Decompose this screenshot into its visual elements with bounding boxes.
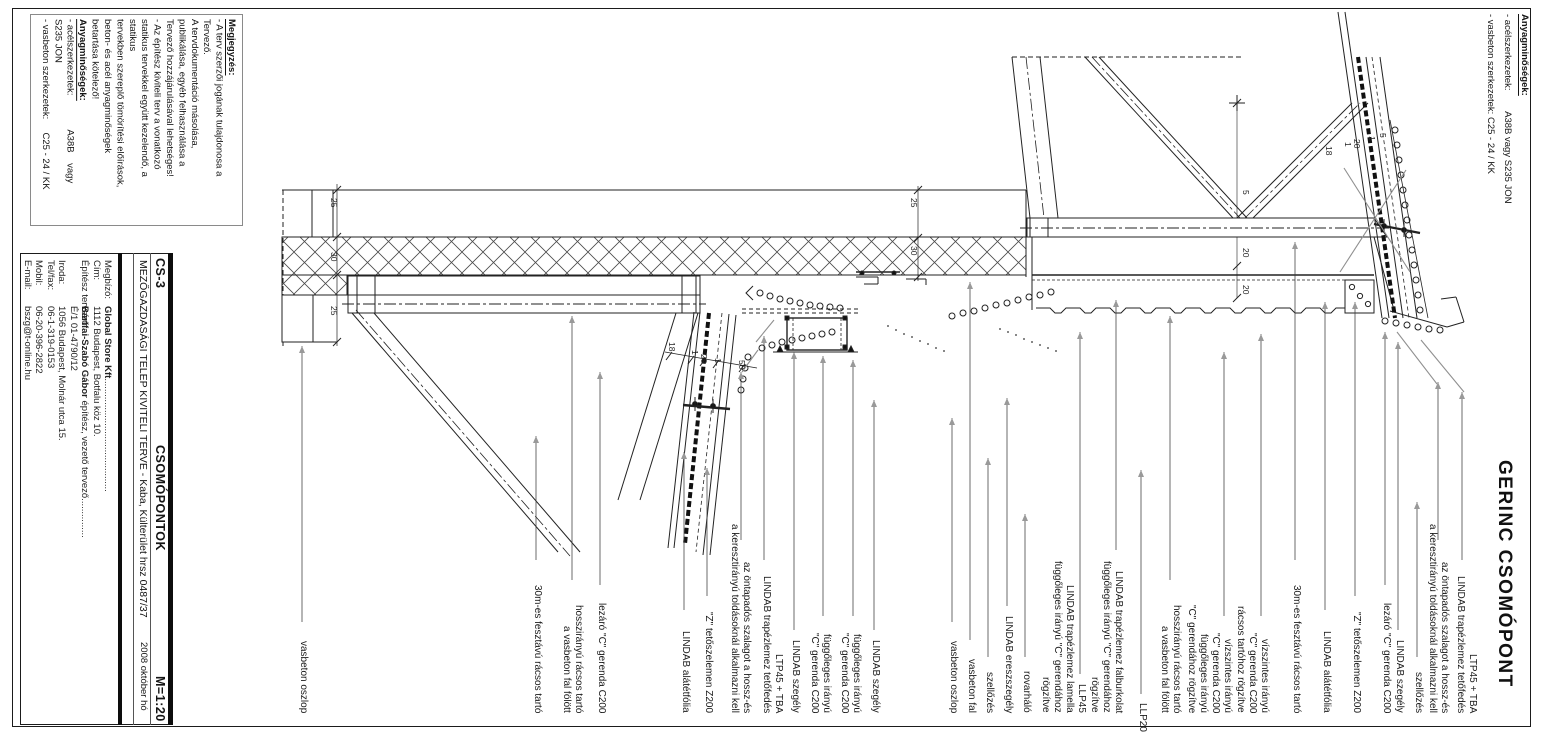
notes-line: beton- és acél anyagminőségek <box>101 19 113 221</box>
leader-arrow-icon <box>1459 392 1465 399</box>
drawing-label: "Z" tetőszelemen Z200 <box>702 612 714 713</box>
notes-line: - Az építész kiviteli terv a vonatkozó <box>150 19 162 221</box>
title-block-row-value-text: É/1 01-4790/12 <box>68 306 79 371</box>
leader-arrow-icon <box>738 372 744 379</box>
dimension-text: 20 <box>1241 248 1251 257</box>
drawing-label: az öntapadós szalagot a hossz-és a keres… <box>728 524 752 713</box>
dimension-text: 5 <box>1378 133 1388 138</box>
drawing-label: vízszintes irányú "C" gerenda C200 függő… <box>1185 605 1233 713</box>
drawing-label: függőleges irányú "C" gerenda C200 <box>808 633 832 713</box>
materials-note-title: Anyagminőségek: <box>1516 14 1533 204</box>
leader-arrow-icon <box>850 360 856 367</box>
notes-line: Tervező hozzájárulásával lehetséges! <box>163 19 175 221</box>
leader-arrow-icon <box>1077 332 1083 339</box>
title-block-row-value-text: ........................................… <box>102 378 113 492</box>
drawing-label: 30m-es fesztávú rácsos tartó <box>1290 585 1302 713</box>
notes-line: betartása kötelező! <box>88 19 100 221</box>
notes-line: statikus <box>125 19 137 221</box>
title-block-row-value-text: 1056 Budapest, Molnár utca 15. <box>56 306 67 441</box>
title-block-row-value-text: 1112 Budapest, Botfalu köz 10. <box>91 306 102 437</box>
issue-date: 2008 október hó <box>138 642 149 711</box>
leader-arrow-icon <box>299 346 305 353</box>
dimension-text: 50 <box>737 360 747 369</box>
notes-line: tervekben szereplő tömörítési előírások, <box>113 19 125 221</box>
title-block-row-value: Bártfai-Szabó Gábor építész, vezető terv… <box>79 306 90 538</box>
dimension-text: 1 <box>713 358 723 363</box>
title-block-row-value-text: bszg@t-online.hu <box>22 306 33 380</box>
title-block-row-label: E-mail: <box>22 260 33 290</box>
project-title: MEZŐGAZDASÁGI TELEP KIVITELI TERVE - Kab… <box>137 260 149 618</box>
materials-note-top-right: Anyagminőségek: - acélszerkezetek: A38B … <box>1482 14 1533 204</box>
drawing-label: 30m-es fesztávú rácsos tartó <box>531 585 543 713</box>
leader-arrow-icon <box>1292 242 1298 249</box>
dimension-text: 30 <box>329 252 339 261</box>
leader-arrow-icon <box>949 418 955 425</box>
leader-arrow-icon <box>1414 502 1420 509</box>
notes-line: Tervező. <box>200 19 212 221</box>
dimension-text: 20 <box>1352 139 1362 148</box>
notes-line: S235 JON <box>51 19 63 221</box>
leader-arrow-icon <box>1258 334 1264 341</box>
title-block-row-label: Cím: <box>91 260 102 280</box>
title-block-row-value-text: 06-20-396-2822 <box>33 306 44 374</box>
sheet-name: CSOMÓPONTOK <box>153 445 167 551</box>
drawing-label: az öntapadós szalagot a hossz-és a keres… <box>1426 524 1450 713</box>
leader-arrow-icon <box>761 336 767 343</box>
notes-line: publikálása, egyéb felhasználása a <box>175 19 187 221</box>
drawing-label: LINDAB ereszszegély <box>1002 616 1014 713</box>
drawing-label: LINDAB szegély <box>1393 640 1405 713</box>
leader-arrow-icon <box>1113 300 1119 307</box>
drawing-label: lezáró "C" gerenda C200 <box>1380 603 1392 714</box>
notes-block: Megjegyzés:- A terv szerzői jogának tula… <box>30 14 243 226</box>
title-block-row-value: 06-1-319-0153 <box>45 306 56 368</box>
drawing-label: függőleges irányú "C" gerenda C200 <box>838 633 862 713</box>
drawing-label: vízszintes irányú "C" gerenda C200 rácso… <box>1234 606 1270 713</box>
title-block-row-label: Megbízó: <box>102 260 113 299</box>
dimension-text: 20 <box>1241 285 1251 294</box>
leader-arrow-icon <box>871 400 877 407</box>
title-block-rule <box>118 253 122 725</box>
drawing-label: LINDAB szegély <box>789 640 801 713</box>
drawing-label: vasbeton oszlop <box>297 641 309 713</box>
title-block-row-label: Tel/fax: <box>45 260 56 290</box>
drawing-title: GERINC CSOMÓPONT <box>1493 460 1515 688</box>
leader-arrow-icon <box>967 282 973 289</box>
drawing-sheet: Megjegyzés:- A terv szerzői jogának tula… <box>0 0 1543 736</box>
drawing-label: lezáró "C" gerenda C200 <box>595 603 607 714</box>
drawing-label: LINDAB alátétfólia <box>679 631 691 713</box>
drawing-label: LTP45 + TBA LINDAB trapézlemez tetőfedés <box>1454 576 1478 713</box>
leader-arrow-icon <box>1395 342 1401 349</box>
title-block-row-value-text: építész, vezető tervező............... <box>79 398 90 538</box>
leader-arrow-icon <box>597 372 603 379</box>
leader-arrow-icon <box>569 316 575 323</box>
title-block-row-value: 1112 Budapest, Botfalu köz 10. <box>91 306 102 437</box>
title-block-row-value-bold: Bártfai-Szabó Gábor <box>79 306 90 398</box>
title-block-row-value-bold: Global Store Kft <box>102 306 113 378</box>
notes-line: A tervdokumentáció másolása, <box>187 19 199 221</box>
drawing-label: szellőzés <box>1412 672 1424 713</box>
leader-arrow-icon <box>1138 470 1144 477</box>
dimension-text: 18 <box>667 342 677 351</box>
leader-arrow-icon <box>1022 514 1028 521</box>
title-block-rule <box>168 253 173 725</box>
leader-arrow-icon <box>1322 302 1328 309</box>
sheet-code: CS-3 <box>153 258 167 288</box>
drawing-label: LTP45 + TBA LINDAB trapézlemez tetőfedés <box>760 576 784 713</box>
leader-arrow-icon <box>791 352 797 359</box>
notes-line: statikus tervekkel együtt kezelendő, a <box>138 19 150 221</box>
leader-arrow-icon <box>1221 352 1227 359</box>
title-block-row-value: 06-20-396-2822 <box>33 306 44 374</box>
notes-heading: Megjegyzés: <box>225 19 237 221</box>
drawing-label: vasbeton oszlop <box>947 641 959 713</box>
drawing-label: LINDAB trapézlemez falburkolat függőlege… <box>1088 561 1124 713</box>
title-block-row-value: bszg@t-online.hu <box>22 306 33 380</box>
notes-heading: Anyagminőségek: <box>76 19 88 221</box>
dimension-text: 25 <box>329 306 339 315</box>
dimension-text: 25 <box>329 198 339 207</box>
title-block-row-value: É/1 01-4790/12 <box>68 306 79 371</box>
title-block-divider <box>150 253 151 725</box>
notes-line: - vasbeton szerkezetek: C25 - 24 / KK <box>39 19 51 221</box>
leader-arrow-icon <box>1004 398 1010 405</box>
drawing-label: rovarháló <box>1020 671 1032 713</box>
drawing-label: "Z" tetőszelemen Z200 <box>1350 612 1362 713</box>
left-wall-and-truss <box>282 184 1026 556</box>
leader-arrow-icon <box>681 452 687 459</box>
drawing-label: vasbeton fal <box>965 659 977 713</box>
materials-note-line: - vasbeton szerkezetek: C25 - 24 / KK <box>1482 14 1499 204</box>
title-block-row-value: 1056 Budapest, Molnár utca 15. <box>56 306 67 441</box>
drawing-label: LINDAB alátétfólia <box>1320 631 1332 713</box>
title-block-row-value-text: 06-1-319-0153 <box>45 306 56 368</box>
dimension-text: 30 <box>909 246 919 255</box>
leader-arrow-icon <box>1382 332 1388 339</box>
leader-arrow-icon <box>820 356 826 363</box>
drawing-label: LINDAB szegély <box>869 640 881 713</box>
dimension-text: 20 <box>699 354 709 363</box>
leader-arrow-icon <box>985 458 991 465</box>
sheet-scale: M=1:20 <box>153 676 167 722</box>
dimension-text: 1 <box>1367 136 1377 141</box>
leader-arrow-icon <box>533 436 539 443</box>
drawing-label: hosszirányú rácsos tartó a vasbeton fal … <box>1158 605 1182 713</box>
dimension-text: 18 <box>1324 146 1334 155</box>
title-block-row-label: Iroda: <box>56 260 67 284</box>
leader-arrow-icon <box>1167 316 1173 323</box>
notes-line: - A terv szerzői jogának tulajdonosa a <box>212 19 224 221</box>
title-block-divider <box>133 253 134 725</box>
dimension-text: 5 <box>1241 190 1251 195</box>
title-block-row-label: Mobil: <box>33 260 44 285</box>
title-block-row-value: Global Store Kft........................… <box>102 306 113 492</box>
materials-note-line: - acélszerkezetek: A38B vagy S235 JON <box>1499 14 1516 204</box>
drawing-label: hosszirányú rácsos tartó a vasbeton fal … <box>560 605 584 713</box>
drawing-label: LLP20 <box>1136 703 1148 732</box>
dimension-text: 25 <box>909 198 919 207</box>
drawing-label: szellőzés <box>983 672 995 713</box>
notes-line: - acélszerkezetek: A38B vagy <box>63 19 75 221</box>
drawing-label: LLP45 LINDAB trapézlemez lamella függőle… <box>1039 561 1087 713</box>
